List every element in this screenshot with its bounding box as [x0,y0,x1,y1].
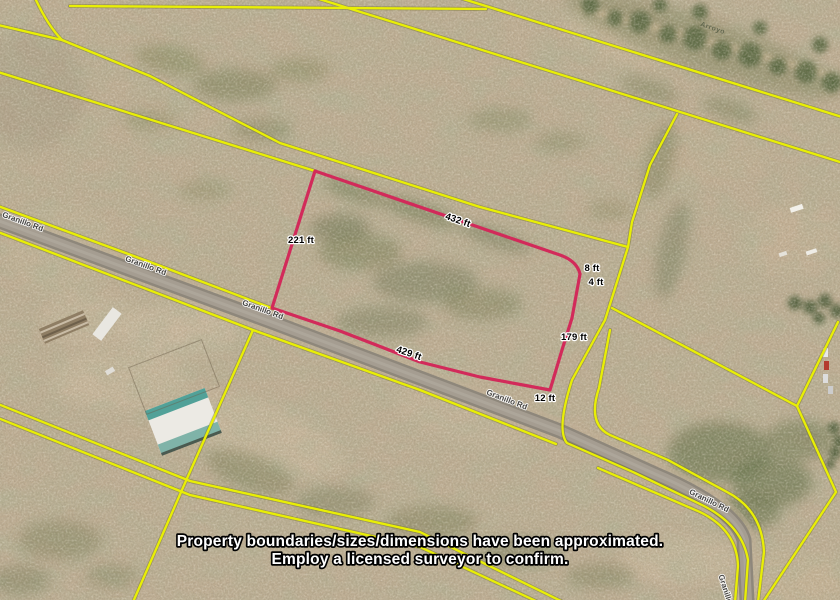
disclaimer-line-1: Property boundaries/sizes/dimensions hav… [177,533,664,550]
satellite-parcel-map: Granillo Rd Granillo Rd Granillo Rd Gran… [0,0,840,600]
dimension-left: 221 ft [288,235,315,246]
map-canvas: Granillo Rd Granillo Rd Granillo Rd Gran… [0,0,840,600]
disclaimer-line-2: Employ a licensed surveyor to confirm. [271,551,568,568]
dimension-right: 179 ft [561,332,588,343]
dimension-jog-c: 12 ft [535,393,556,404]
dimension-jog-a: 8 ft [584,263,600,274]
dimension-jog-b: 4 ft [588,277,604,288]
